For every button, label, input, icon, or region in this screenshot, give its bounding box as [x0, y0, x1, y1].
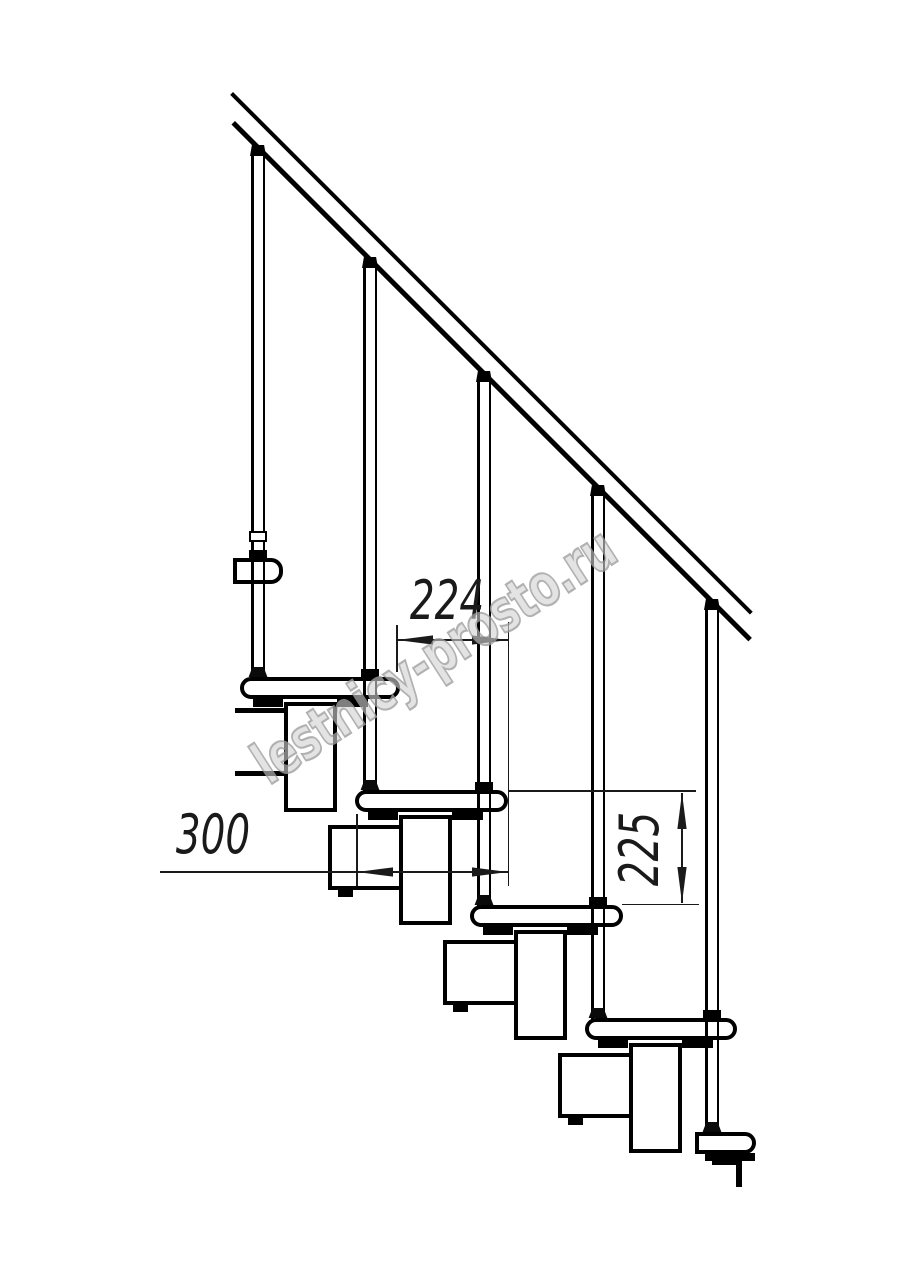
module-2-tall-box: [399, 815, 452, 925]
baluster-5-collar: [703, 1010, 721, 1022]
module-2-nub: [338, 889, 353, 897]
baluster-4-collar: [589, 897, 607, 909]
module-3-clamp-left: [483, 926, 513, 935]
module-4-tall-box: [629, 1043, 682, 1153]
dimension-tread-length-ext-left: [356, 814, 358, 886]
baluster-1-sleeve-joint: [249, 531, 267, 542]
baluster-2-rail-cap: [362, 257, 378, 268]
module-3-tall-box: [514, 930, 567, 1040]
staircase-drawing-canvas: 224 300 225 lestnicy-prosto.ru: [0, 0, 914, 1280]
baluster-5-left-line: [705, 610, 708, 1134]
tread-5-stub: [695, 1132, 756, 1154]
baluster-1-rail-cap: [250, 145, 266, 156]
module-3-nub: [453, 1004, 468, 1012]
dimension-rise-arrow-up: [677, 793, 688, 829]
handrail-upper-line: [231, 92, 753, 614]
handrail-lower-line: [232, 121, 752, 641]
module-5-top-line: [712, 1161, 739, 1165]
baluster-3-rail-cap: [476, 371, 492, 382]
baluster-1-right-line: [263, 156, 266, 679]
module-4-big-box: [558, 1053, 633, 1118]
baluster-1-left-line: [251, 156, 254, 679]
dimension-rise-ext-top: [509, 790, 696, 792]
dimension-rise-arrow-down: [677, 867, 688, 903]
module-1-clamp-left: [253, 698, 283, 707]
dimension-rise-ext-bottom: [622, 904, 699, 906]
module-2-big-box: [328, 825, 403, 890]
dimension-tread-length-line: [160, 871, 508, 873]
module-2-clamp-left: [368, 811, 398, 820]
dimension-tread-length-label: 300: [155, 806, 270, 864]
baluster-4-rail-cap: [590, 485, 606, 496]
dimension-rise-label: 225: [611, 791, 669, 906]
dimension-going-ext-right: [508, 622, 510, 886]
module-4-nub: [568, 1117, 583, 1125]
module-5-clamp: [705, 1153, 755, 1161]
baluster-5-right-line: [717, 610, 720, 1134]
module-4-clamp-right: [682, 1039, 713, 1048]
module-4-clamp-left: [598, 1039, 628, 1048]
watermark-text: lestnicy-prosto.ru: [237, 511, 630, 801]
module-3-big-box: [443, 940, 518, 1005]
baluster-1-collar: [249, 550, 267, 562]
baluster-3-collar: [475, 782, 493, 794]
module-5-edge-line: [736, 1161, 742, 1187]
baluster-5-rail-cap: [704, 599, 720, 610]
